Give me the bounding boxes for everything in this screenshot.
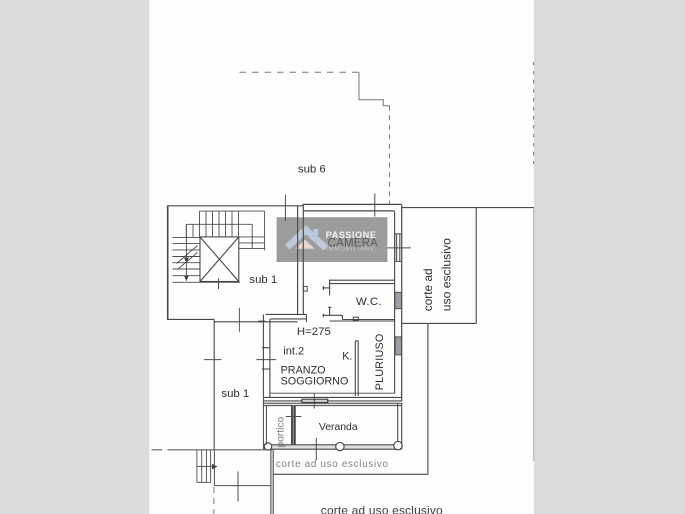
- svg-text:corte ad: corte ad: [421, 268, 435, 311]
- svg-text:W.C.: W.C.: [356, 296, 382, 308]
- svg-text:SOGGIORNO: SOGGIORNO: [281, 375, 349, 387]
- svg-text:uso esclusivo: uso esclusivo: [439, 238, 453, 311]
- svg-text:int.2: int.2: [283, 345, 304, 357]
- svg-text:corte ad uso esclusivo: corte ad uso esclusivo: [276, 459, 389, 470]
- svg-text:H=275: H=275: [297, 326, 331, 338]
- svg-text:sub 1: sub 1: [249, 274, 277, 286]
- svg-text:corte ad uso esclusivo: corte ad uso esclusivo: [321, 503, 443, 514]
- svg-text:PLURIUSO: PLURIUSO: [374, 333, 386, 390]
- svg-text:Veranda: Veranda: [319, 422, 358, 433]
- svg-text:sub 6: sub 6: [298, 164, 326, 176]
- svg-text:portico: portico: [275, 416, 286, 447]
- svg-text:sub 1: sub 1: [221, 388, 249, 400]
- svg-text:IMMOBILIARE: IMMOBILIARE: [326, 246, 375, 252]
- svg-text:K.: K.: [342, 351, 352, 363]
